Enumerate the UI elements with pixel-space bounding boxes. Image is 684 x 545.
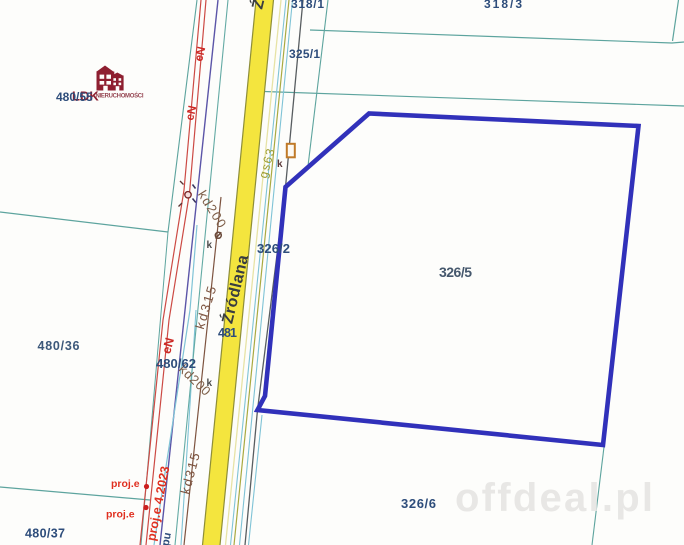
svg-text:480/55: 480/55 — [56, 90, 93, 104]
svg-text:318/3: 318/3 — [484, 0, 522, 11]
svg-text:pu: pu — [160, 532, 174, 545]
svg-text:480/36: 480/36 — [38, 339, 80, 353]
svg-text:326/6: 326/6 — [401, 496, 436, 511]
svg-text:325/1: 325/1 — [289, 47, 320, 61]
svg-text:k: k — [207, 378, 213, 389]
svg-text:480/62: 480/62 — [156, 356, 196, 371]
svg-text:326/2: 326/2 — [257, 241, 290, 256]
svg-text:NIERUCHOMOŚCI: NIERUCHOMOŚCI — [96, 93, 144, 100]
svg-text:481: 481 — [218, 326, 237, 340]
svg-text:k: k — [277, 159, 283, 170]
svg-text:326/5: 326/5 — [439, 264, 472, 280]
svg-text:480/37: 480/37 — [25, 527, 65, 541]
svg-text:proj.e: proj.e — [106, 509, 135, 521]
svg-text:318/1: 318/1 — [291, 0, 324, 11]
svg-text:proj.e: proj.e — [111, 478, 140, 490]
svg-text:offdeal.pl: offdeal.pl — [455, 476, 653, 520]
svg-text:k: k — [207, 240, 213, 251]
